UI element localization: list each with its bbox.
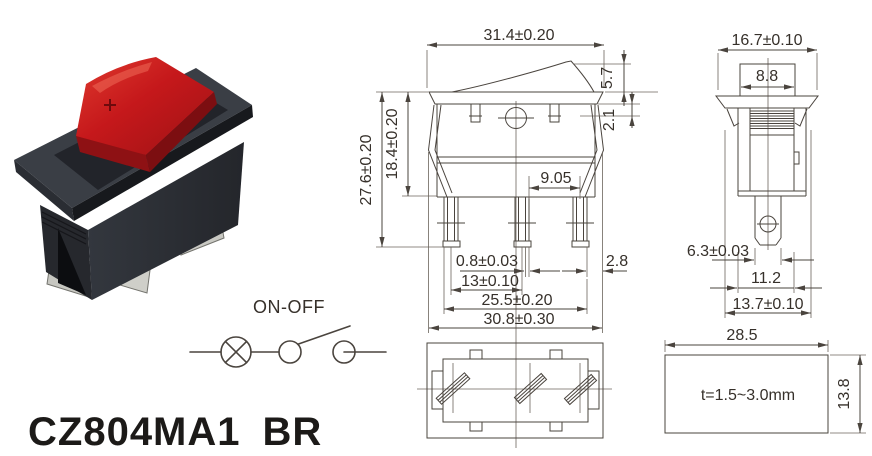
dim-terminal-pitch: 13±0.10 xyxy=(461,273,519,290)
product-photo xyxy=(14,57,253,300)
bottom-view xyxy=(417,343,612,438)
dim-terminal-width: 6.3±0.03 xyxy=(687,243,749,260)
dim-overall-width: 31.4±0.20 xyxy=(483,27,554,44)
part-model: CZ804MA1 xyxy=(28,412,241,452)
dim-housing-depth: 13.7±0.10 xyxy=(732,296,803,313)
dim-overall-height: 27.6±0.20 xyxy=(358,134,375,205)
dim-flange-step: 2.1 xyxy=(601,109,618,131)
datasheet-page: ON-OFF xyxy=(0,0,872,456)
dim-rocker-depth: 8.8 xyxy=(756,68,778,85)
panel-thickness-note: t=1.5~3.0mm xyxy=(701,387,795,404)
dim-rocker-height: 5.7 xyxy=(599,67,616,89)
flange-side xyxy=(716,96,818,108)
latch-notch xyxy=(794,152,799,164)
dim-edge-offset: 2.8 xyxy=(606,253,628,270)
side-dimension-labels: 16.7±0.10 8.8 6.3±0.03 11.2 13.7±0.10 xyxy=(687,32,804,313)
ribs xyxy=(750,111,794,135)
dim-upper-body-height: 18.4±0.20 xyxy=(384,108,401,179)
circuit-schematic: ON-OFF xyxy=(190,297,386,367)
panel-cutout-view: 28.5 13.8 t=1.5~3.0mm xyxy=(665,327,866,433)
dim-terminal-span: 25.5±0.20 xyxy=(481,292,552,309)
front-view: 31.4±0.20 5.7 2.1 27.6±0.20 18.4±0.20 9.… xyxy=(358,27,658,448)
dim-body-depth: 11.2 xyxy=(751,270,781,287)
part-number: CZ804MA1 BR xyxy=(28,412,322,452)
bottom-terminal xyxy=(514,373,546,403)
dim-cutout-height: 13.8 xyxy=(836,378,853,409)
part-variant: BR xyxy=(263,412,323,452)
side-view: 16.7±0.10 8.8 6.3±0.03 11.2 13.7±0.10 xyxy=(687,32,822,318)
dim-flange-depth: 16.7±0.10 xyxy=(731,32,802,49)
bottom-terminal xyxy=(564,374,596,404)
dim-cutout-width: 28.5 xyxy=(726,327,757,344)
schematic-label: ON-OFF xyxy=(253,297,325,317)
rocker-profile xyxy=(452,61,594,92)
technical-drawing: ON-OFF xyxy=(0,0,872,456)
snap-wing-left xyxy=(429,105,448,197)
dim-terminal-gap: 9.05 xyxy=(540,170,571,187)
front-terminals xyxy=(437,197,594,247)
front-dimension-labels: 31.4±0.20 5.7 2.1 27.6±0.20 18.4±0.20 9.… xyxy=(358,27,628,328)
dim-body-width: 30.8±0.30 xyxy=(483,311,554,328)
dim-terminal-thickness: 0.8±0.03 xyxy=(456,253,518,270)
